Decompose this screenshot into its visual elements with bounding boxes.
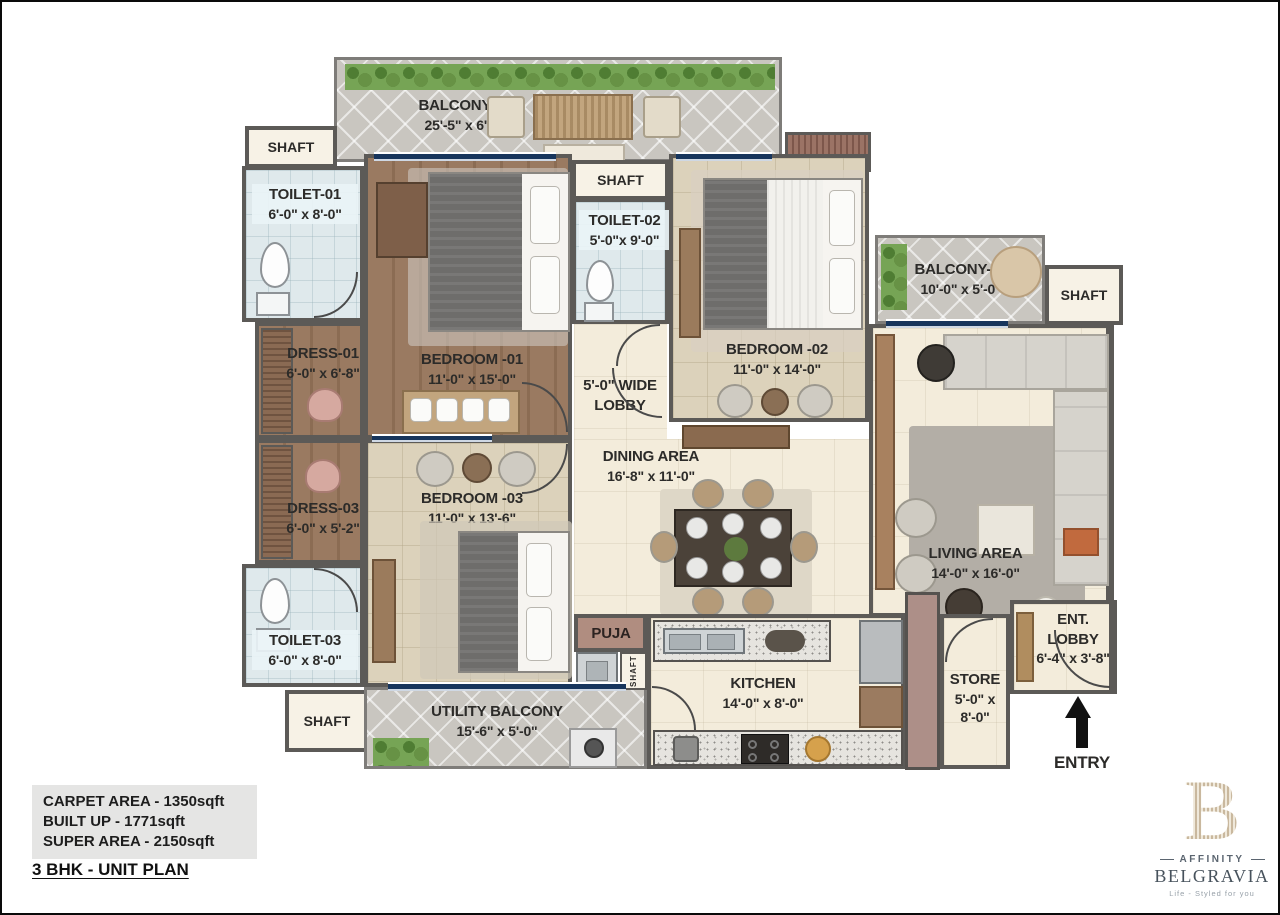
dash-rule — [1251, 859, 1265, 860]
burner — [748, 753, 757, 762]
bed-pillow — [829, 258, 855, 314]
toilet-wc — [586, 260, 614, 302]
bed-pillow — [526, 543, 552, 597]
room-shaft-top-center: SHAFT — [572, 160, 669, 200]
brand-tagline: Life - Styled for you — [1169, 889, 1255, 898]
plate — [686, 557, 708, 579]
plan-title: 3 BHK - UNIT PLAN — [32, 860, 189, 880]
bench-sofa — [402, 390, 520, 434]
kitchen-counter-bottom — [653, 730, 903, 766]
brand-monogram-icon: B — [1183, 770, 1240, 852]
bed-pillow — [526, 607, 552, 661]
room-balcony-02: BALCONY-02 10'-0" x 5'-0" — [875, 235, 1045, 324]
room-label: TOILET-03 6'-0" x 8'-0" — [252, 630, 358, 670]
room-name: SHAFT — [1049, 269, 1119, 321]
room-dims: 6'-0" x 6'-8" — [281, 364, 365, 382]
bed-blanket — [705, 180, 767, 328]
cushion — [410, 398, 432, 422]
plate — [722, 561, 744, 583]
dresser — [372, 559, 396, 663]
cushion — [488, 398, 510, 422]
room-name: SHAFT — [249, 130, 333, 164]
side-table-round — [917, 344, 955, 382]
entry-arrow-head — [1065, 696, 1091, 718]
room-dims: 5'-0" x 8'-0" — [946, 690, 1004, 726]
bed-pillow — [829, 190, 855, 246]
refrigerator — [859, 620, 903, 684]
plate — [760, 557, 782, 579]
room-living: LIVING AREA 14'-0" x 16'-0" — [869, 324, 1114, 617]
window — [676, 152, 772, 161]
room-name: TOILET-01 — [255, 185, 355, 205]
bed-blanket — [460, 533, 518, 671]
dash-rule — [1160, 859, 1174, 860]
room-label: TOILET-01 6'-0" x 8'-0" — [252, 184, 358, 224]
room-dims: 15'-6" x 5'-0" — [407, 722, 587, 740]
room-dims: 14'-0" x 16'-0" — [903, 564, 1048, 582]
area-info-box: CARPET AREA - 1350sqft BUILT UP - 1771sq… — [32, 785, 257, 859]
room-name: TOILET-03 — [255, 631, 355, 651]
room-shaft-right: SHAFT — [1045, 265, 1123, 325]
console-table — [682, 425, 790, 449]
room-name: STORE — [946, 670, 1004, 690]
room-balcony-01: BALCONY-01 25'-5" x 6'-0" — [334, 57, 782, 162]
room-dims: 5'-0"x 9'-0" — [582, 231, 667, 249]
burner — [770, 740, 779, 749]
room-puja: PUJA — [574, 614, 647, 652]
hedge-planter — [373, 738, 429, 766]
brand-name-top: AFFINITY — [1180, 854, 1245, 865]
washbasin — [584, 302, 614, 322]
side-table — [462, 453, 492, 483]
toilet-wc — [260, 578, 290, 624]
sofa-right — [1053, 390, 1109, 586]
room-name: TOILET-02 — [582, 211, 667, 231]
accent-cushion — [1063, 528, 1099, 556]
sink-bowl — [707, 634, 735, 650]
dining-chair — [790, 531, 818, 563]
dress-chair — [307, 388, 343, 422]
dining-chair — [692, 587, 724, 617]
room-name: DINING AREA — [586, 447, 716, 467]
bed — [458, 531, 570, 673]
brand-name-main: BELGRAVIA — [1154, 866, 1269, 887]
room-label: TOILET-02 5'-0"x 9'-0" — [579, 210, 670, 250]
room-dress-01: DRESS-01 6'-0" x 6'-8" — [255, 322, 364, 439]
sofa-top — [943, 334, 1109, 390]
brand-logo: B AFFINITY BELGRAVIA Life - Styled for y… — [1147, 770, 1277, 898]
brand-affinity-row: AFFINITY — [1160, 854, 1265, 865]
room-name: KITCHEN — [703, 674, 823, 694]
tv-console — [875, 334, 895, 590]
entry-arrow — [1065, 696, 1099, 752]
kitchen-counter-top — [653, 620, 831, 662]
dining-chair — [650, 531, 678, 563]
dresser — [679, 228, 701, 338]
room-dims: 6'-0" x 8'-0" — [255, 205, 355, 223]
accent-chair — [717, 384, 753, 418]
washer-drum — [584, 738, 604, 758]
room-kitchen: KITCHEN 14'-0" x 8'-0" — [647, 614, 905, 769]
wall-panel — [905, 592, 940, 770]
room-name: SHAFT — [289, 694, 365, 748]
room-shaft-bottom-left: SHAFT — [285, 690, 369, 752]
lounge-chair — [895, 498, 937, 538]
room-label: BEDROOM -02 11'-0" x 14'-0" — [701, 340, 853, 378]
room-name: LIVING AREA — [903, 544, 1048, 564]
accent-chair — [797, 384, 833, 418]
hedge-planter — [345, 64, 775, 90]
room-label: LIVING AREA 14'-0" x 16'-0" — [903, 544, 1048, 582]
window — [388, 682, 626, 691]
fruit-basket — [805, 736, 831, 762]
dining-chair — [742, 587, 774, 617]
toilet-wc — [260, 242, 290, 288]
room-name: DRESS-03 — [281, 499, 365, 519]
room-utility-balcony: UTILITY BALCONY 15'-6" x 5'-0" — [364, 687, 647, 769]
sink-bowl — [669, 634, 701, 650]
accent-chair — [416, 451, 454, 487]
counter-accessory — [765, 630, 805, 652]
cushion — [462, 398, 484, 422]
bed-sheet — [767, 180, 823, 328]
bed — [428, 172, 570, 332]
room-label: DRESS-03 6'-0" x 5'-2" — [281, 499, 365, 537]
balcony-chair — [643, 96, 681, 138]
balcony-chair — [487, 96, 525, 138]
room-toilet-02: TOILET-02 5'-0"x 9'-0" — [572, 198, 669, 324]
washing-machine — [569, 728, 617, 768]
room-name: BEDROOM -01 — [396, 350, 548, 370]
dresser — [376, 182, 428, 258]
floor-plan-canvas: BALCONY-01 25'-5" x 6'-0" SHAFT SHAFT SH… — [0, 0, 1280, 915]
room-bedroom-02: BEDROOM -02 11'-0" x 14'-0" — [669, 154, 869, 422]
dining-chair — [742, 479, 774, 509]
window — [374, 152, 556, 161]
plate — [760, 517, 782, 539]
room-label: UTILITY BALCONY 15'-6" x 5'-0" — [407, 702, 587, 740]
room-label: STORE 5'-0" x 8'-0" — [946, 670, 1004, 726]
appliance — [673, 736, 699, 762]
room-label: DINING AREA 16'-8" x 11'-0" — [586, 447, 716, 485]
side-table — [761, 388, 789, 416]
room-label: DRESS-01 6'-0" x 6'-8" — [281, 344, 365, 382]
sink-bowl — [586, 661, 608, 681]
room-name: UTILITY BALCONY — [407, 702, 587, 722]
built-up-text: BUILT UP - 1771sqft — [43, 812, 246, 832]
bed-pillow — [530, 256, 560, 314]
window — [886, 319, 1008, 328]
entry-label: ENTRY — [1042, 752, 1122, 774]
room-name: DRESS-01 — [281, 344, 365, 364]
bed-pillow — [530, 186, 560, 244]
room-dims: 11'-0" x 14'-0" — [701, 360, 853, 378]
room-dress-03: DRESS-03 6'-0" x 5'-2" — [255, 439, 364, 564]
room-dims: 6'-0" x 5'-2" — [281, 519, 365, 537]
carpet-area-text: CARPET AREA - 1350sqft — [43, 792, 246, 812]
super-area-text: SUPER AREA - 2150sqft — [43, 832, 246, 852]
room-name: PUJA — [578, 624, 644, 644]
plate — [686, 517, 708, 539]
room-dims: 6'-0" x 8'-0" — [255, 651, 355, 669]
round-table — [990, 246, 1042, 298]
kitchen-sink — [663, 628, 745, 654]
burner — [748, 740, 757, 749]
room-name: SHAFT — [576, 164, 665, 196]
balcony-sofa — [533, 94, 633, 140]
burner — [770, 753, 779, 762]
stove — [741, 734, 789, 764]
entry-arrow-stem — [1076, 718, 1088, 748]
room-dining: DINING AREA 16'-8" x 11'-0" — [574, 439, 869, 614]
window — [372, 434, 492, 442]
centerpiece — [724, 537, 748, 561]
room-dims: 14'-0" x 8'-0" — [703, 694, 823, 712]
plate — [722, 513, 744, 535]
room-name: BEDROOM -02 — [701, 340, 853, 360]
room-label: KITCHEN 14'-0" x 8'-0" — [703, 674, 823, 712]
room-shaft-top-left: SHAFT — [245, 126, 337, 168]
dining-chair — [692, 479, 724, 509]
bed — [703, 178, 863, 330]
dining-table — [674, 509, 792, 587]
bed-blanket — [430, 174, 522, 330]
washbasin — [256, 292, 290, 316]
cushion — [436, 398, 458, 422]
tall-cabinet — [859, 686, 903, 728]
dress-chair — [305, 459, 341, 493]
